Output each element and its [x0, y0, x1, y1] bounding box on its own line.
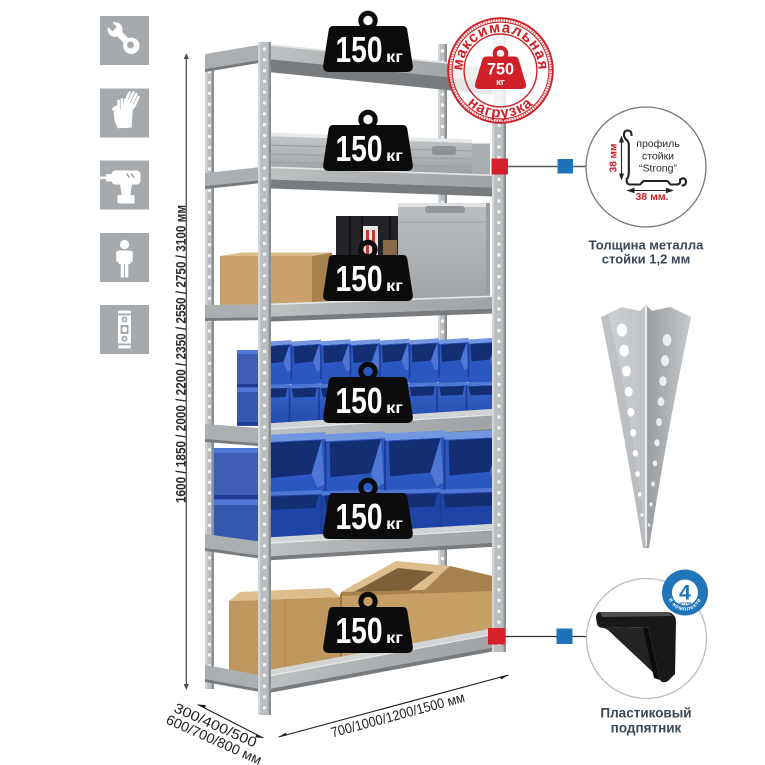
svg-text:кг: кг [386, 516, 404, 533]
svg-text:750: 750 [487, 61, 514, 79]
svg-text:150: 150 [336, 610, 383, 651]
svg-text:“Strong”: “Strong” [639, 163, 677, 175]
svg-text:Пластиковый: Пластиковый [600, 706, 691, 721]
svg-text:150: 150 [336, 29, 383, 70]
svg-text:Толщина металла: Толщина металла [589, 238, 704, 253]
svg-text:150: 150 [336, 496, 383, 537]
svg-text:стойки 1,2 мм: стойки 1,2 мм [602, 252, 690, 267]
svg-text:кг: кг [386, 278, 404, 295]
svg-text:38 мм: 38 мм [609, 144, 620, 173]
svg-text:подпятник: подпятник [611, 721, 682, 736]
svg-text:150: 150 [336, 380, 383, 421]
svg-text:1600 / 1850 / 2000 / 2200 / 23: 1600 / 1850 / 2000 / 2200 / 2350 / 2550 … [174, 205, 189, 503]
svg-text:профиль: профиль [636, 138, 680, 150]
svg-text:стойки: стойки [642, 151, 674, 163]
svg-text:штуки: штуки [678, 601, 692, 606]
svg-text:кг: кг [386, 400, 404, 417]
svg-text:150: 150 [336, 258, 383, 299]
svg-text:кг: кг [386, 148, 404, 165]
svg-text:38 мм.: 38 мм. [635, 191, 668, 203]
svg-text:150: 150 [336, 128, 383, 169]
svg-text:кг: кг [496, 77, 505, 88]
svg-text:кг: кг [386, 49, 404, 66]
svg-text:кг: кг [386, 630, 404, 647]
